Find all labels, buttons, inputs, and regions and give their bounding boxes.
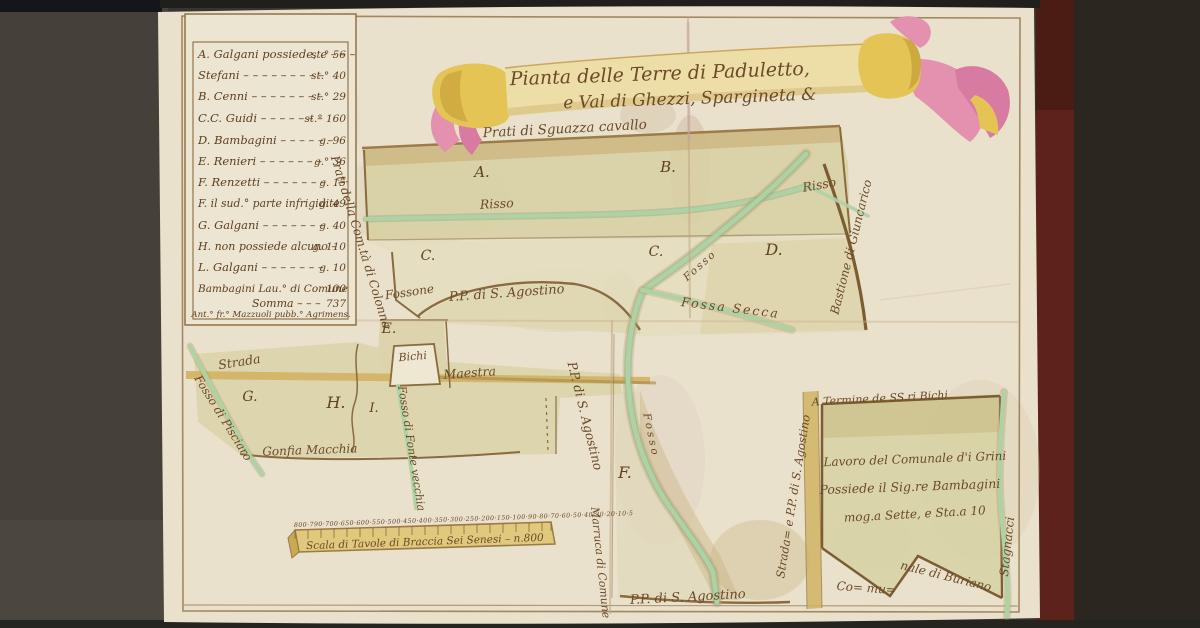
label-bichi: Bichi [397,349,427,365]
legend-box: A. Galgani possiede, e – – – st.° 56 Ste… [185,14,356,325]
legend-row-label: B. Cenni – – – – – – – – [197,89,323,103]
map-photo: A. Galgani possiede, e – – – st.° 56 Ste… [0,0,1200,628]
region-letter-b: B. [659,158,676,176]
legend-row-value: st.° 29 [311,91,346,103]
legend-row-label: F. Renzetti – – – – – – – [197,175,326,189]
background-left-bottom [0,520,168,628]
region-letter-h: H. [325,393,345,412]
legend-row-label: Somma – – – [252,297,321,310]
legend-row-value: 737 [326,298,346,310]
legend-row-value: st.° 40 [311,70,346,82]
legend-row-label: D. Bambagini – – – – – – [197,133,333,147]
legend-row-value: st.° 160 [304,113,346,125]
region-letter-d: D. [764,240,782,259]
legend-row-value: g. 110 [313,241,347,253]
region-letter-i: I. [368,401,378,416]
region-letter-c-left: C. [421,248,436,264]
table-maroon-shade [1036,0,1074,110]
region-letter-f: F. [617,463,632,482]
legend-row-value: g. 40 [319,220,346,232]
legend-row-value: 100 [326,283,346,295]
legend-signature: Ant.° fr.° Mazzuoli pubb.° Agrimens. [190,310,350,320]
region-letter-g: G. [242,389,257,405]
legend-row-label: Stefani – – – – – – – – – [198,68,324,82]
label-risso-left: Risso [479,195,515,212]
background-topleft-corner [0,0,162,12]
legend-row-label: G. Galgani – – – – – – – [198,218,325,232]
legend-row-value: st.° 56 [311,49,346,61]
region-letter-c-right: C. [649,244,664,260]
legend-row-value: g. 96 [319,135,346,147]
region-letter-a: A. [472,163,490,181]
legend-row-value: g. 10 [319,262,346,274]
legend-row-label: E. Renieri – – – – – – – [197,154,322,168]
legend-row-label: L. Galgani – – – – – – – [197,260,324,274]
